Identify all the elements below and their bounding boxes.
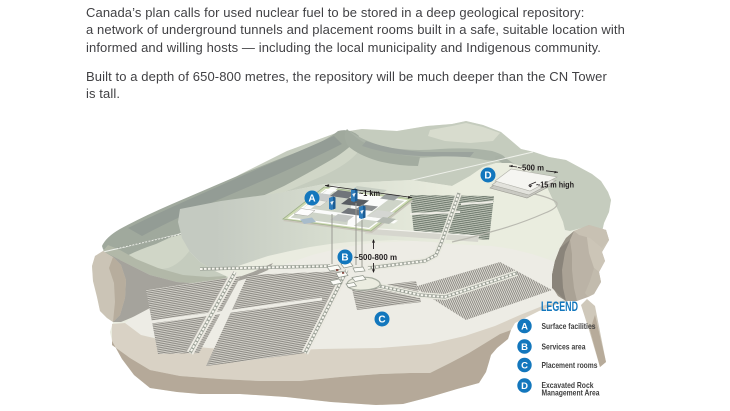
svg-text:~1 km: ~1 km (359, 188, 380, 198)
svg-text:B: B (521, 342, 528, 353)
svg-text:B: B (341, 253, 348, 264)
svg-text:Placement rooms: Placement rooms (542, 360, 598, 370)
svg-text:A: A (308, 194, 315, 205)
svg-text:C: C (521, 361, 528, 372)
svg-text:D: D (521, 381, 528, 392)
svg-text:Surface facilities: Surface facilities (542, 321, 596, 331)
svg-text:~500-800 m: ~500-800 m (354, 252, 397, 262)
svg-text:Services area: Services area (542, 342, 586, 352)
svg-text:~15 m high: ~15 m high (536, 180, 574, 189)
svg-text:D: D (484, 171, 491, 182)
svg-text:Management Area: Management Area (542, 388, 600, 398)
svg-text:~500 m: ~500 m (518, 163, 545, 172)
svg-text:LEGEND: LEGEND (541, 299, 578, 314)
svg-text:C: C (378, 315, 385, 326)
svg-text:A: A (521, 322, 528, 333)
